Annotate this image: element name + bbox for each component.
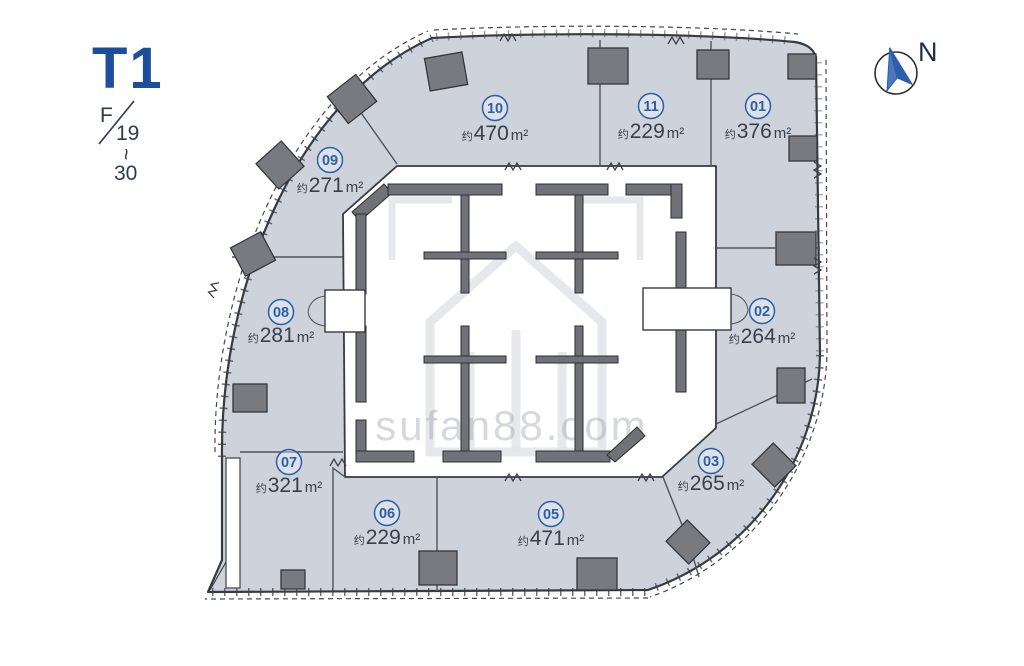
floor-prefix: F [100,104,113,127]
unit-09-number: 09 [322,153,338,169]
unit-08-number: 08 [273,305,289,321]
title-block: T1 F 19 ~ 30 [92,36,164,185]
unit-10-number: 10 [487,101,503,117]
unit-02-number: 02 [754,304,770,320]
north-label: N [918,37,938,67]
column [697,50,729,79]
unit-06-number: 06 [379,506,395,522]
floor-from: 19 [116,122,139,145]
unit-07-number: 07 [281,455,297,471]
column [588,48,628,84]
column [419,551,457,585]
column [425,52,468,91]
watermark-text: sufan88.com [375,402,648,449]
column [789,136,817,161]
column [777,368,805,403]
unit-05-number: 05 [543,507,559,523]
floorplan-page: sufan88.com [0,0,1024,666]
floor-to: 30 [114,162,137,185]
floorplan-canvas: sufan88.com [0,0,1024,666]
unit-03-number: 03 [703,454,719,470]
column [788,54,816,79]
column [776,232,816,265]
north-compass: N [875,37,938,94]
tower-title: T1 [92,36,164,101]
column [281,570,305,589]
floor-tilde: ~ [114,148,137,160]
column [577,558,617,590]
column [233,384,267,412]
unit-01-number: 01 [750,99,766,115]
unit-11-number: 11 [643,99,658,115]
